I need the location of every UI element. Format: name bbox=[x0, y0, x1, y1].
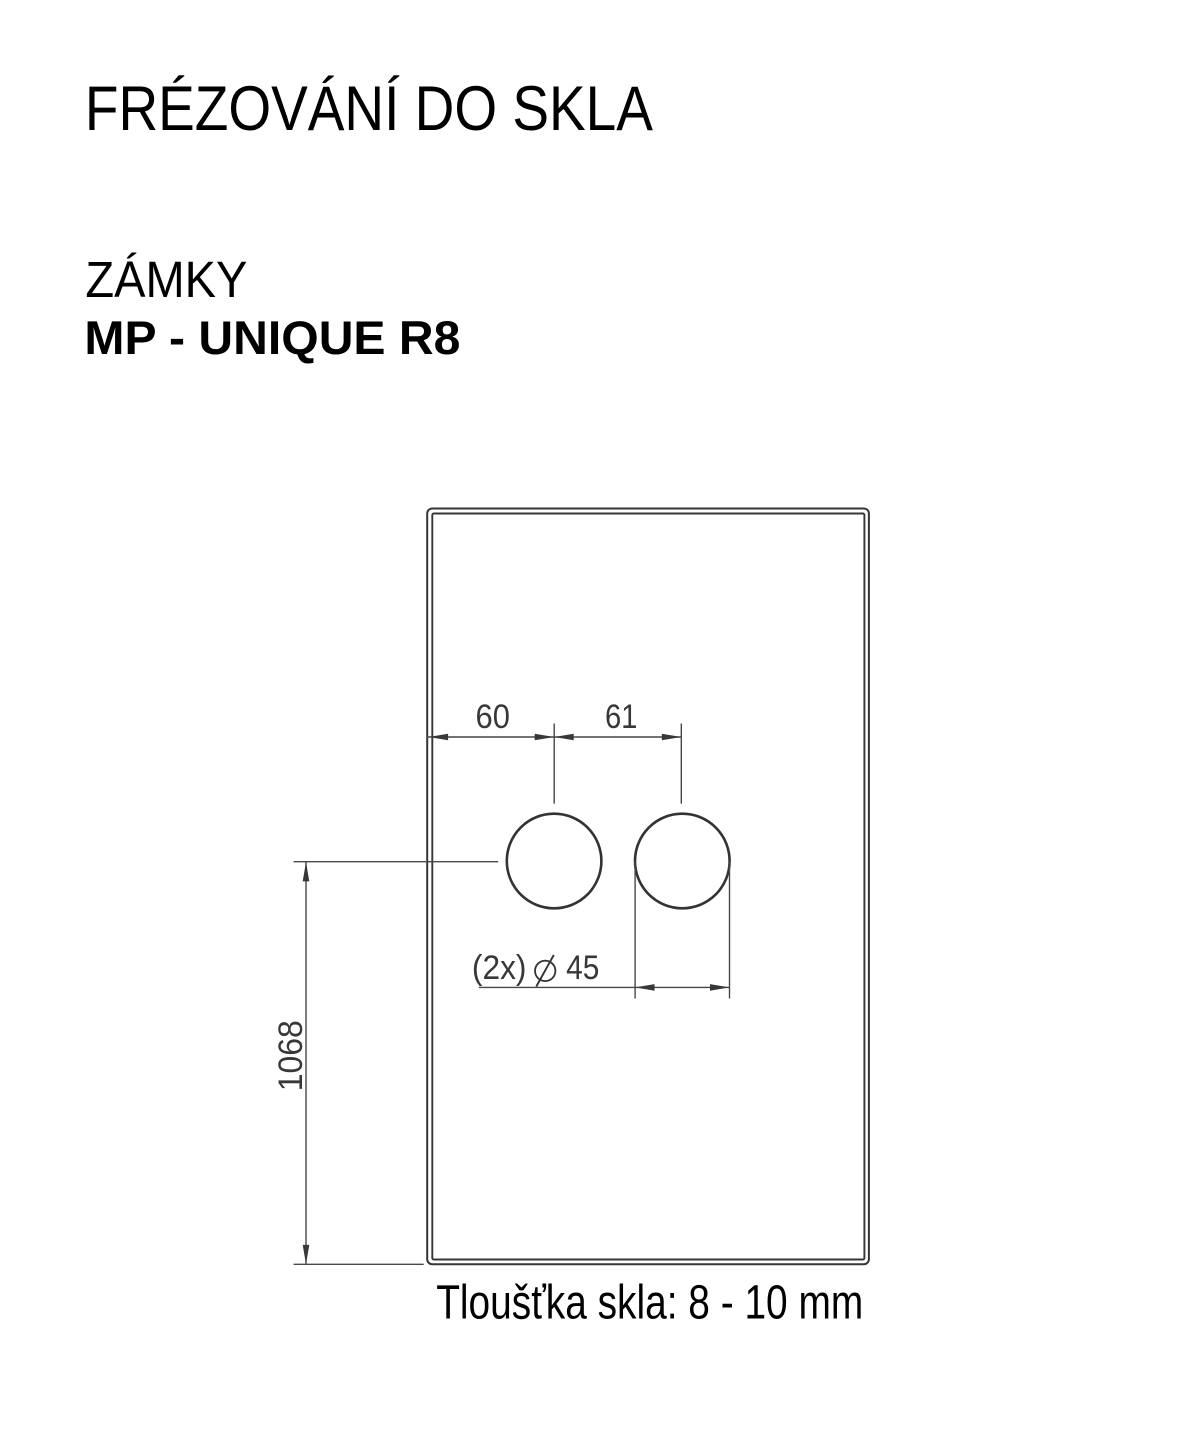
svg-text:ZÁMKY: ZÁMKY bbox=[85, 251, 247, 308]
svg-text:FRÉZOVÁNÍ DO SKLA: FRÉZOVÁNÍ DO SKLA bbox=[85, 74, 653, 144]
svg-text:Tloušťka skla: 8 - 10 mm: Tloušťka skla: 8 - 10 mm bbox=[436, 1276, 863, 1329]
svg-text:60: 60 bbox=[476, 698, 510, 736]
svg-text:1068: 1068 bbox=[272, 1020, 310, 1091]
svg-text:MP - UNIQUE R8: MP - UNIQUE R8 bbox=[84, 311, 460, 364]
svg-text:61: 61 bbox=[605, 698, 638, 736]
svg-text:(2x): (2x) bbox=[472, 949, 527, 987]
svg-text:45: 45 bbox=[566, 949, 599, 987]
